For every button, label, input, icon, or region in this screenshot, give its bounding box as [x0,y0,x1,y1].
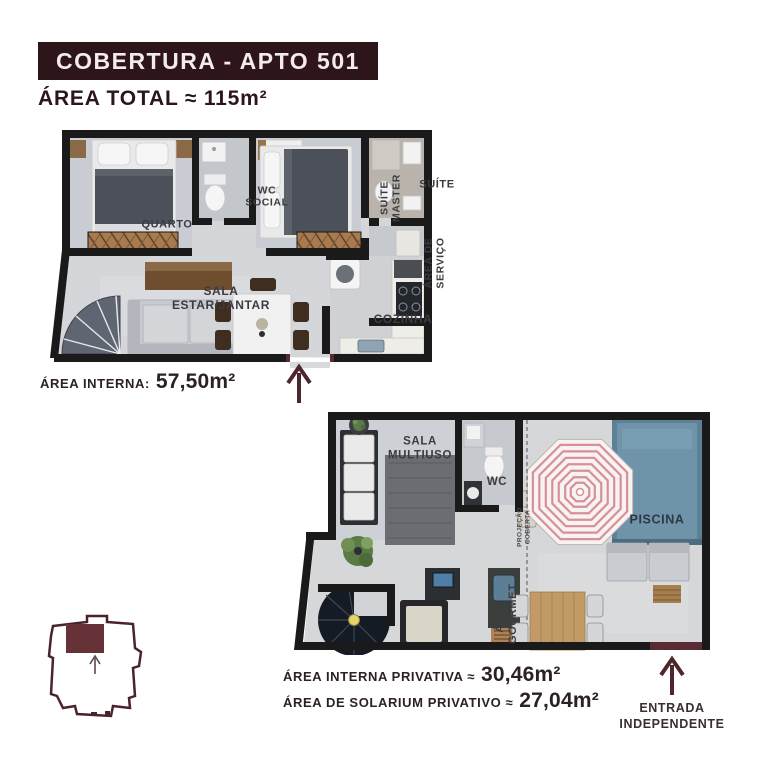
key-plan [35,608,160,753]
room-label-suite: SUÍTE [419,179,454,192]
lower-solarium-stat-label: ÁREA DE SOLARIUM PRIVATIVO ≈ [283,695,513,710]
room-label-area-servico: ÁREA DE SERVIÇO [423,236,448,290]
up-arrow-icon [657,653,687,695]
wc-social-fixtures [202,142,226,211]
up-arrow-icon [284,361,314,403]
room-label-area-gourmet: ÁREA GOURMET [494,588,520,644]
upper-floor-plan-drawing [40,126,440,371]
upper-entry-arrow [284,361,314,408]
upper-floor-plan [40,126,440,371]
entry-threshold-right [330,354,334,362]
room-label-suite-master: SUÍTE MASTER [379,174,404,222]
upper-area-stat: ÁREA INTERNA: 57,50m² [40,370,236,394]
upper-area-stat-value: 57,50m² [156,370,236,394]
entrada-label: ENTRADA INDEPENDENTE [612,701,732,732]
floorplan-sheet: COBERTURA - APTO 501 ÁREA TOTAL ≈ 115m² [0,0,768,768]
lower-interna-stat-label: ÁREA INTERNA PRIVATIVA ≈ [283,669,475,684]
lower-armchair [400,600,448,648]
deck-strip-left [88,232,178,249]
room-label-quarto: QUARTO [141,219,192,232]
room-label-wc-social: WC SOCIAL [238,185,296,210]
entrada-independente: ENTRADA INDEPENDENTE [612,653,732,732]
room-label-sala: SALA ESTAR/JANTAR [169,284,273,312]
deck-strip-right [297,232,361,249]
room-label-cozinha: COZINHA [374,312,433,326]
lower-entry-accent [650,642,702,650]
lower-interna-stat: ÁREA INTERNA PRIVATIVA ≈ 30,46m² [283,663,561,687]
multiuso-rug [385,455,455,545]
lower-tv-stand [425,568,460,600]
page-title: COBERTURA - APTO 501 [56,48,360,75]
upper-area-stat-label: ÁREA INTERNA: [40,376,150,391]
room-label-sala-multiuso: SALA MULTIUSO [382,435,458,462]
title-bar: COBERTURA - APTO 501 [38,42,378,80]
lower-interna-stat-value: 30,46m² [481,663,561,687]
room-label-projecao-coberta: PROJEÇÃO COBERTA [516,501,531,553]
area-total-label: ÁREA TOTAL ≈ 115m² [38,87,267,111]
multiuso-sofa [340,430,378,525]
unit-location-marker [66,624,104,653]
lower-solarium-stat-value: 27,04m² [519,689,599,713]
key-plan-drawing [35,608,160,753]
umbrella [527,439,632,544]
room-label-piscina: PISCINA [630,513,685,528]
lower-solarium-stat: ÁREA DE SOLARIUM PRIVATIVO ≈ 27,04m² [283,689,599,713]
room-label-wc: WC [487,476,507,490]
